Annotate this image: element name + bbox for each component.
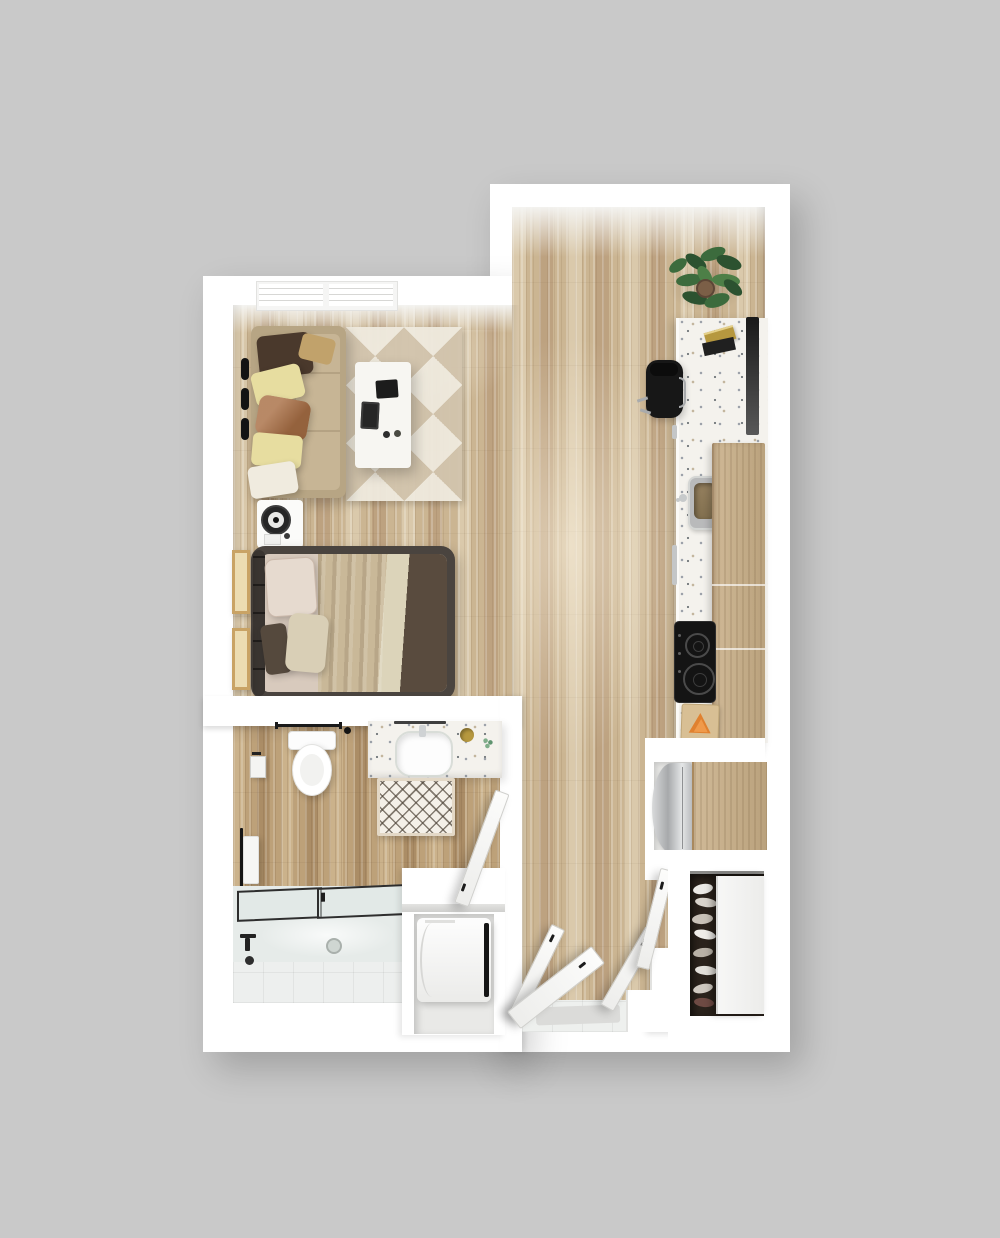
burner-inner xyxy=(693,673,707,687)
hand-towel xyxy=(243,836,259,884)
plant-pot xyxy=(696,279,715,298)
washer-dryer xyxy=(417,918,491,1002)
tablet xyxy=(360,402,379,430)
bed-pillow-large xyxy=(264,556,318,617)
office-chair xyxy=(646,360,683,418)
toilet-paper-holder xyxy=(250,756,266,778)
wall-art-inner xyxy=(235,631,247,687)
closet-door-rail xyxy=(690,871,764,874)
wall-hook-icon xyxy=(344,727,351,734)
bath-mat xyxy=(377,778,455,836)
mirror-edge xyxy=(394,721,446,724)
towel-bar xyxy=(277,724,341,727)
sliding-closet-door xyxy=(716,876,764,1014)
screen-handle xyxy=(321,893,325,902)
cooktop-knob xyxy=(678,670,681,673)
shoe xyxy=(694,897,717,909)
washer-door-arc xyxy=(420,923,444,997)
towel-bar-end xyxy=(339,722,342,729)
cabinet-handle-icon xyxy=(672,545,677,585)
cooktop-knob xyxy=(678,652,681,655)
sink-faucet-icon xyxy=(419,725,426,737)
shoe xyxy=(692,913,714,925)
potted-plant xyxy=(660,240,752,336)
toilet-bowl xyxy=(292,744,332,796)
mug xyxy=(394,430,401,437)
floorplan-render xyxy=(0,0,1000,1238)
window-pane xyxy=(329,284,393,306)
vanity-plant-sprig xyxy=(482,737,494,749)
headboard xyxy=(253,550,265,696)
orange-slice xyxy=(694,719,708,732)
coffee-table xyxy=(355,362,411,468)
upper-cabinets xyxy=(712,443,765,752)
tub-faucet-icon xyxy=(245,938,250,951)
shoe xyxy=(692,882,713,895)
toilet-seat-inner xyxy=(300,754,324,786)
bench-face xyxy=(402,904,505,912)
induction-cooktop xyxy=(675,622,715,702)
laptop xyxy=(375,379,398,398)
shoe xyxy=(693,928,716,941)
towel-bar-end xyxy=(275,722,278,729)
vanity-counter xyxy=(368,721,502,778)
washer-vent xyxy=(425,920,455,923)
shoe xyxy=(692,947,713,959)
door-handle-icon xyxy=(549,934,555,943)
cooktop-knob xyxy=(678,634,681,637)
toilet-paper-bracket xyxy=(252,752,261,755)
nightstand xyxy=(257,500,303,548)
refrigerator xyxy=(652,763,692,853)
chair-arm-chrome xyxy=(679,377,686,408)
soap-dish-icon xyxy=(460,728,474,742)
mug xyxy=(383,431,390,438)
glass-shower-screen xyxy=(317,884,405,919)
washer-control-strip xyxy=(484,923,489,997)
bed-pillow-small xyxy=(285,612,330,673)
window-pane xyxy=(259,284,323,306)
door-handle-icon xyxy=(659,881,664,889)
glass-shower-screen xyxy=(237,887,322,922)
kitchen-faucet-icon xyxy=(679,494,687,502)
burner-ring xyxy=(683,663,715,695)
burner-inner xyxy=(693,641,704,652)
window-band xyxy=(256,281,398,311)
blind-control-icon xyxy=(241,388,249,410)
shoe xyxy=(695,965,718,976)
tub-handle-icon xyxy=(245,956,254,965)
shoe xyxy=(694,997,715,1008)
small-box xyxy=(264,534,281,545)
door-handle-icon xyxy=(461,883,467,892)
small-dot xyxy=(284,533,290,539)
speaker-dot xyxy=(273,517,279,523)
wall-art-frame xyxy=(232,628,250,690)
kitchen-lower-wall xyxy=(645,738,765,762)
cabinet-handle-icon xyxy=(672,425,677,439)
chair-backrest xyxy=(650,363,678,376)
tub-drain-icon xyxy=(326,938,342,954)
fridge-seam xyxy=(682,767,683,849)
wall-art-frame xyxy=(232,550,250,614)
blind-control-icon xyxy=(241,358,249,380)
shoe xyxy=(692,982,713,995)
tub-tile-floor xyxy=(233,962,405,1003)
cabinet-seam xyxy=(712,648,765,650)
cabinet-seam xyxy=(712,584,765,586)
burner-ring xyxy=(685,633,710,658)
fridge-cabinet-panel xyxy=(692,762,767,854)
blind-control-icon xyxy=(241,418,249,440)
door-handle-icon xyxy=(578,961,586,968)
wall-art-inner xyxy=(235,553,247,611)
oval-sink xyxy=(395,731,453,777)
